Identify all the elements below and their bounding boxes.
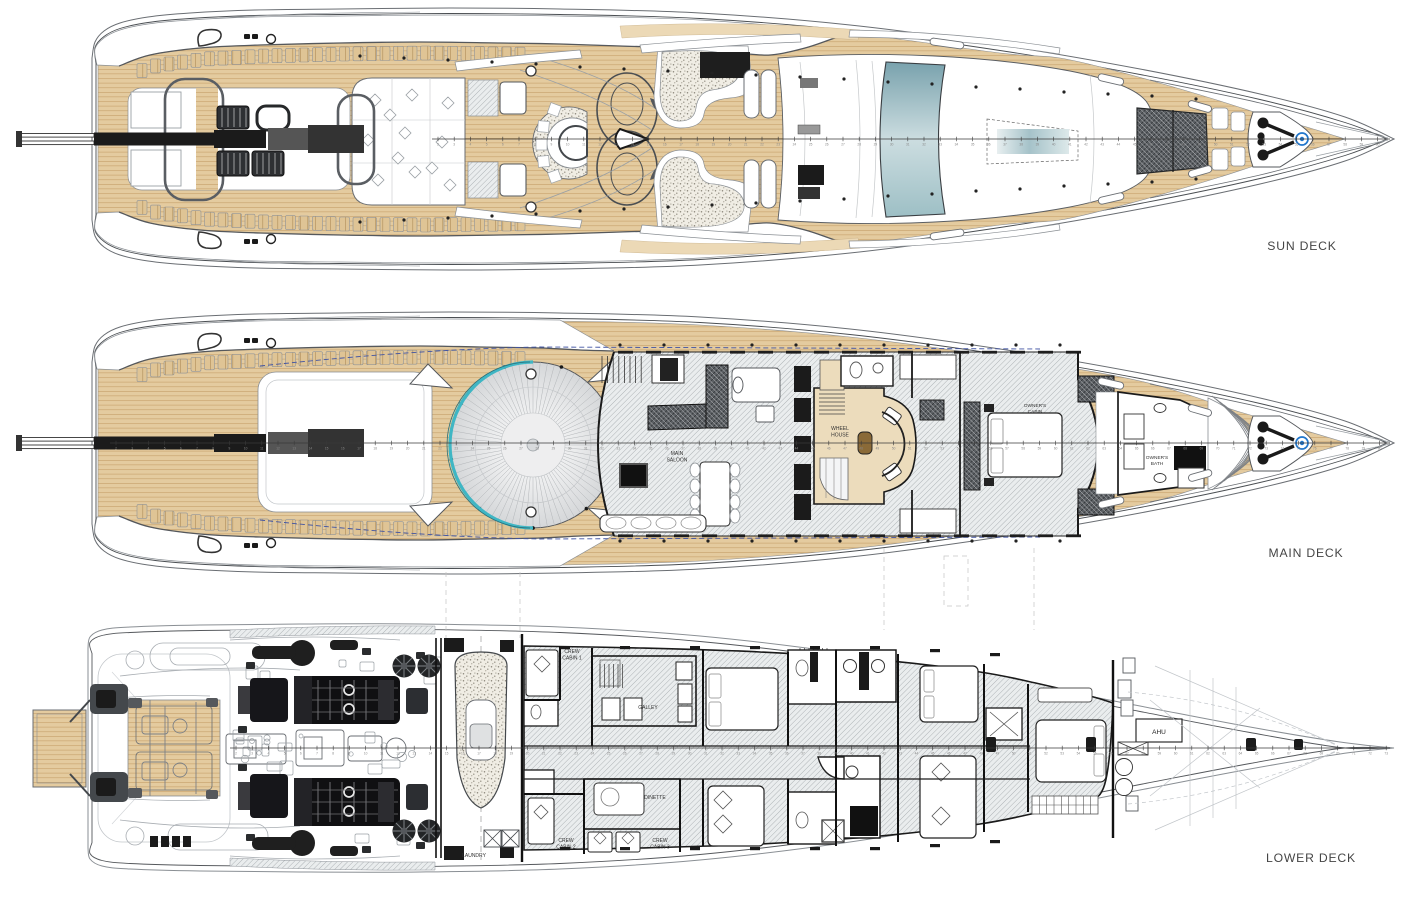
svg-text:40: 40 xyxy=(1052,143,1056,147)
svg-text:65: 65 xyxy=(1255,752,1259,756)
svg-text:11: 11 xyxy=(260,447,264,451)
svg-text:28: 28 xyxy=(655,752,659,756)
svg-text:4: 4 xyxy=(470,143,472,147)
svg-text:8: 8 xyxy=(534,143,536,147)
svg-text:27: 27 xyxy=(639,752,643,756)
svg-text:9: 9 xyxy=(551,143,553,147)
svg-text:36: 36 xyxy=(987,143,991,147)
svg-text:DINETTE: DINETTE xyxy=(644,795,666,801)
svg-text:24: 24 xyxy=(793,143,797,147)
svg-text:51: 51 xyxy=(908,447,912,451)
svg-text:52: 52 xyxy=(924,447,928,451)
svg-text:29: 29 xyxy=(874,143,878,147)
svg-text:26: 26 xyxy=(825,143,829,147)
svg-text:66: 66 xyxy=(1151,447,1155,451)
svg-text:71: 71 xyxy=(1352,752,1356,756)
svg-text:56: 56 xyxy=(989,447,993,451)
svg-text:BATH: BATH xyxy=(1151,461,1164,467)
svg-text:77: 77 xyxy=(1329,447,1333,451)
svg-text:SALOON: SALOON xyxy=(667,458,688,464)
svg-text:14: 14 xyxy=(309,447,313,451)
svg-text:28: 28 xyxy=(857,143,861,147)
svg-text:53: 53 xyxy=(940,447,944,451)
svg-text:69: 69 xyxy=(1320,752,1324,756)
svg-text:68: 68 xyxy=(1303,752,1307,756)
svg-text:31: 31 xyxy=(704,752,708,756)
svg-text:5: 5 xyxy=(284,752,286,756)
svg-text:11: 11 xyxy=(582,143,586,147)
svg-text:10: 10 xyxy=(364,752,368,756)
svg-text:40: 40 xyxy=(730,447,734,451)
svg-text:76: 76 xyxy=(1313,447,1317,451)
svg-text:CABIN: CABIN xyxy=(1028,409,1043,415)
svg-text:31: 31 xyxy=(906,143,910,147)
svg-text:41: 41 xyxy=(746,447,750,451)
svg-text:CREW: CREW xyxy=(652,838,668,844)
svg-text:21: 21 xyxy=(422,447,426,451)
svg-text:30: 30 xyxy=(688,752,692,756)
svg-text:44: 44 xyxy=(915,752,919,756)
svg-text:32: 32 xyxy=(600,447,604,451)
svg-text:18: 18 xyxy=(373,447,377,451)
svg-text:68: 68 xyxy=(1183,447,1187,451)
svg-text:LOWER DECK: LOWER DECK xyxy=(1266,851,1356,865)
svg-text:16: 16 xyxy=(341,447,345,451)
svg-text:6: 6 xyxy=(300,752,302,756)
svg-text:51: 51 xyxy=(1230,143,1234,147)
svg-text:80: 80 xyxy=(1378,447,1382,451)
svg-text:16: 16 xyxy=(461,752,465,756)
svg-text:10: 10 xyxy=(566,143,570,147)
svg-text:46: 46 xyxy=(827,447,831,451)
svg-text:22: 22 xyxy=(438,447,442,451)
svg-text:19: 19 xyxy=(510,752,514,756)
svg-text:OWNER'S: OWNER'S xyxy=(1024,403,1047,409)
svg-text:CREW: CREW xyxy=(564,649,580,655)
svg-text:17: 17 xyxy=(477,752,481,756)
svg-text:47: 47 xyxy=(1165,143,1169,147)
svg-text:48: 48 xyxy=(979,752,983,756)
svg-text:6: 6 xyxy=(180,447,182,451)
svg-text:36: 36 xyxy=(665,447,669,451)
svg-text:74: 74 xyxy=(1281,447,1285,451)
svg-text:42: 42 xyxy=(1084,143,1088,147)
svg-text:17: 17 xyxy=(679,143,683,147)
svg-text:13: 13 xyxy=(614,143,618,147)
svg-text:65: 65 xyxy=(1135,447,1139,451)
svg-text:37: 37 xyxy=(1003,143,1007,147)
svg-text:32: 32 xyxy=(720,752,724,756)
svg-text:19: 19 xyxy=(712,143,716,147)
svg-text:3: 3 xyxy=(131,447,133,451)
svg-text:59: 59 xyxy=(1038,447,1042,451)
svg-text:60: 60 xyxy=(1376,143,1380,147)
svg-text:13: 13 xyxy=(412,752,416,756)
svg-text:60: 60 xyxy=(1174,752,1178,756)
svg-text:OWNER'S: OWNER'S xyxy=(1146,455,1169,461)
svg-text:54: 54 xyxy=(1279,143,1283,147)
svg-text:8: 8 xyxy=(332,752,334,756)
svg-text:5: 5 xyxy=(486,143,488,147)
svg-text:22: 22 xyxy=(558,752,562,756)
svg-text:52: 52 xyxy=(1246,143,1250,147)
svg-text:78: 78 xyxy=(1345,447,1349,451)
svg-text:47: 47 xyxy=(963,752,967,756)
svg-text:49: 49 xyxy=(996,752,1000,756)
svg-text:79: 79 xyxy=(1362,447,1366,451)
svg-text:21: 21 xyxy=(744,143,748,147)
svg-text:39: 39 xyxy=(714,447,718,451)
svg-text:70: 70 xyxy=(1216,447,1220,451)
svg-text:5: 5 xyxy=(164,447,166,451)
svg-text:55: 55 xyxy=(1295,143,1299,147)
svg-text:33: 33 xyxy=(616,447,620,451)
svg-text:12: 12 xyxy=(276,447,280,451)
svg-text:SUN DECK: SUN DECK xyxy=(1267,239,1336,253)
svg-text:45: 45 xyxy=(811,447,815,451)
svg-text:30: 30 xyxy=(568,447,572,451)
svg-text:37: 37 xyxy=(801,752,805,756)
svg-text:24: 24 xyxy=(471,447,475,451)
svg-text:7: 7 xyxy=(196,447,198,451)
svg-text:54: 54 xyxy=(957,447,961,451)
svg-text:9: 9 xyxy=(229,447,231,451)
svg-text:27: 27 xyxy=(519,447,523,451)
svg-text:11: 11 xyxy=(380,752,384,756)
svg-text:14: 14 xyxy=(429,752,433,756)
svg-text:20: 20 xyxy=(406,447,410,451)
svg-text:70: 70 xyxy=(1336,752,1340,756)
svg-text:50: 50 xyxy=(1214,143,1218,147)
svg-text:20: 20 xyxy=(526,752,530,756)
svg-text:6: 6 xyxy=(502,143,504,147)
svg-text:31: 31 xyxy=(584,447,588,451)
svg-text:64: 64 xyxy=(1239,752,1243,756)
svg-text:46: 46 xyxy=(947,752,951,756)
svg-text:42: 42 xyxy=(882,752,886,756)
svg-text:LAUNDRY: LAUNDRY xyxy=(462,853,486,859)
svg-text:8: 8 xyxy=(212,447,214,451)
svg-text:25: 25 xyxy=(809,143,813,147)
svg-text:15: 15 xyxy=(647,143,651,147)
svg-text:3: 3 xyxy=(251,752,253,756)
svg-text:69: 69 xyxy=(1200,447,1204,451)
svg-text:53: 53 xyxy=(1060,752,1064,756)
svg-text:23: 23 xyxy=(574,752,578,756)
svg-text:12: 12 xyxy=(598,143,602,147)
svg-text:33: 33 xyxy=(736,752,740,756)
svg-text:60: 60 xyxy=(1054,447,1058,451)
svg-text:58: 58 xyxy=(1141,752,1145,756)
svg-text:CABIN 1: CABIN 1 xyxy=(562,656,582,662)
svg-text:73: 73 xyxy=(1264,447,1268,451)
svg-text:55: 55 xyxy=(973,447,977,451)
svg-text:39: 39 xyxy=(834,752,838,756)
svg-text:41: 41 xyxy=(866,752,870,756)
svg-text:28: 28 xyxy=(535,447,539,451)
svg-text:7: 7 xyxy=(518,143,520,147)
svg-text:25: 25 xyxy=(487,447,491,451)
svg-text:GALLEY: GALLEY xyxy=(638,705,658,711)
svg-text:34: 34 xyxy=(753,752,757,756)
svg-text:33: 33 xyxy=(938,143,942,147)
svg-text:57: 57 xyxy=(1327,143,1331,147)
svg-text:10: 10 xyxy=(244,447,248,451)
svg-text:13: 13 xyxy=(292,447,296,451)
svg-text:40: 40 xyxy=(850,752,854,756)
svg-text:MAIN DECK: MAIN DECK xyxy=(1269,546,1344,560)
svg-text:63: 63 xyxy=(1102,447,1106,451)
svg-text:48: 48 xyxy=(859,447,863,451)
svg-text:44: 44 xyxy=(795,447,799,451)
svg-text:46: 46 xyxy=(1149,143,1153,147)
svg-text:58: 58 xyxy=(1343,143,1347,147)
svg-text:55: 55 xyxy=(1093,752,1097,756)
svg-text:72: 72 xyxy=(1248,447,1252,451)
svg-text:57: 57 xyxy=(1125,752,1129,756)
svg-text:AHU: AHU xyxy=(1152,729,1166,736)
svg-text:67: 67 xyxy=(1287,752,1291,756)
svg-text:38: 38 xyxy=(817,752,821,756)
svg-text:64: 64 xyxy=(1119,447,1123,451)
svg-text:59: 59 xyxy=(1158,752,1162,756)
svg-text:7: 7 xyxy=(316,752,318,756)
svg-text:56: 56 xyxy=(1311,143,1315,147)
svg-text:23: 23 xyxy=(776,143,780,147)
svg-text:43: 43 xyxy=(778,447,782,451)
svg-text:37: 37 xyxy=(681,447,685,451)
svg-text:27: 27 xyxy=(841,143,845,147)
svg-text:38: 38 xyxy=(697,447,701,451)
svg-text:3: 3 xyxy=(453,143,455,147)
svg-text:50: 50 xyxy=(1012,752,1016,756)
svg-text:62: 62 xyxy=(1086,447,1090,451)
svg-text:25: 25 xyxy=(607,752,611,756)
svg-text:44: 44 xyxy=(1117,143,1121,147)
svg-text:45: 45 xyxy=(931,752,935,756)
svg-text:66: 66 xyxy=(1271,752,1275,756)
svg-text:59: 59 xyxy=(1360,143,1364,147)
svg-text:42: 42 xyxy=(762,447,766,451)
svg-text:61: 61 xyxy=(1070,447,1074,451)
svg-text:49: 49 xyxy=(1198,143,1202,147)
svg-text:36: 36 xyxy=(785,752,789,756)
svg-text:49: 49 xyxy=(876,447,880,451)
svg-text:75: 75 xyxy=(1297,447,1301,451)
svg-text:9: 9 xyxy=(349,752,351,756)
svg-text:2: 2 xyxy=(437,143,439,147)
svg-text:4: 4 xyxy=(148,447,150,451)
svg-text:73: 73 xyxy=(1384,752,1388,756)
svg-text:34: 34 xyxy=(955,143,959,147)
svg-text:23: 23 xyxy=(454,447,458,451)
svg-text:35: 35 xyxy=(769,752,773,756)
svg-text:63: 63 xyxy=(1222,752,1226,756)
svg-text:43: 43 xyxy=(898,752,902,756)
svg-text:22: 22 xyxy=(760,143,764,147)
svg-text:43: 43 xyxy=(1100,143,1104,147)
svg-text:72: 72 xyxy=(1368,752,1372,756)
svg-text:14: 14 xyxy=(631,143,635,147)
svg-text:45: 45 xyxy=(1133,143,1137,147)
svg-text:16: 16 xyxy=(663,143,667,147)
svg-text:50: 50 xyxy=(892,447,896,451)
svg-text:34: 34 xyxy=(633,447,637,451)
svg-text:32: 32 xyxy=(922,143,926,147)
svg-text:29: 29 xyxy=(552,447,556,451)
svg-text:HOUSE: HOUSE xyxy=(831,433,849,439)
svg-text:CABIN 3: CABIN 3 xyxy=(650,845,670,851)
svg-text:56: 56 xyxy=(1109,752,1113,756)
svg-text:WHEEL: WHEEL xyxy=(831,426,849,432)
svg-text:29: 29 xyxy=(672,752,676,756)
svg-text:62: 62 xyxy=(1206,752,1210,756)
svg-text:58: 58 xyxy=(1021,447,1025,451)
svg-text:30: 30 xyxy=(890,143,894,147)
svg-text:15: 15 xyxy=(445,752,449,756)
svg-text:41: 41 xyxy=(1068,143,1072,147)
svg-text:52: 52 xyxy=(1044,752,1048,756)
svg-text:35: 35 xyxy=(649,447,653,451)
svg-text:39: 39 xyxy=(1036,143,1040,147)
svg-text:61: 61 xyxy=(1190,752,1194,756)
svg-text:2: 2 xyxy=(235,752,237,756)
svg-text:20: 20 xyxy=(728,143,732,147)
svg-text:18: 18 xyxy=(493,752,497,756)
svg-text:24: 24 xyxy=(591,752,595,756)
svg-text:51: 51 xyxy=(1028,752,1032,756)
svg-text:35: 35 xyxy=(971,143,975,147)
svg-text:12: 12 xyxy=(396,752,400,756)
svg-text:26: 26 xyxy=(503,447,507,451)
svg-text:15: 15 xyxy=(325,447,329,451)
svg-text:48: 48 xyxy=(1181,143,1185,147)
svg-text:71: 71 xyxy=(1232,447,1236,451)
svg-text:57: 57 xyxy=(1005,447,1009,451)
svg-text:67: 67 xyxy=(1167,447,1171,451)
svg-text:53: 53 xyxy=(1262,143,1266,147)
svg-text:19: 19 xyxy=(390,447,394,451)
svg-text:MAIN: MAIN xyxy=(671,451,684,457)
svg-text:47: 47 xyxy=(843,447,847,451)
svg-text:4: 4 xyxy=(268,752,270,756)
svg-text:38: 38 xyxy=(1019,143,1023,147)
svg-text:2: 2 xyxy=(115,447,117,451)
svg-text:17: 17 xyxy=(357,447,361,451)
svg-text:18: 18 xyxy=(695,143,699,147)
svg-text:54: 54 xyxy=(1077,752,1081,756)
svg-text:21: 21 xyxy=(542,752,546,756)
svg-text:CREW: CREW xyxy=(558,838,574,844)
svg-text:26: 26 xyxy=(623,752,627,756)
